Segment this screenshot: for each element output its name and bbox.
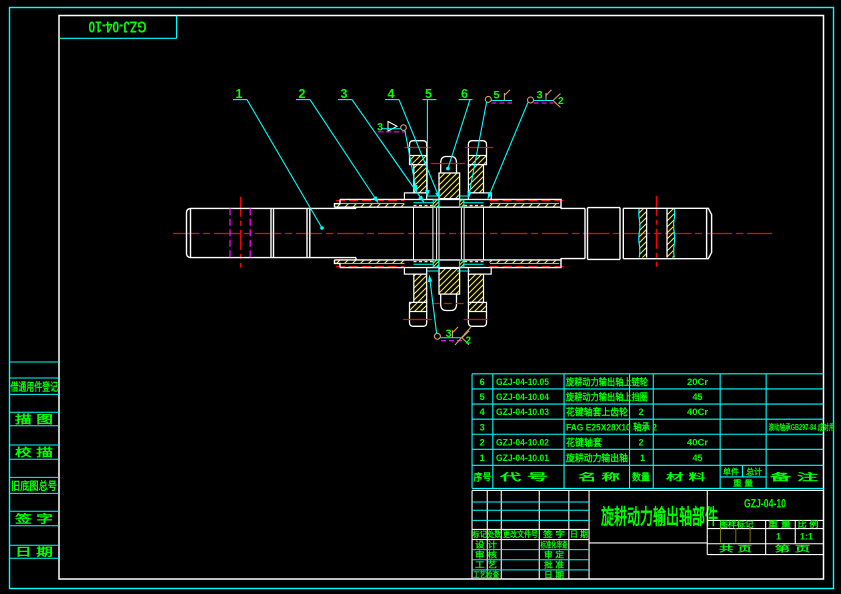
- svg-text:40Cr: 40Cr: [687, 407, 709, 417]
- svg-text:45: 45: [693, 392, 703, 402]
- svg-text:序号: 序号: [474, 472, 492, 484]
- svg-text:GZJ-04-10.02: GZJ-04-10.02: [496, 437, 549, 447]
- svg-text:名 称: 名 称: [578, 472, 621, 484]
- svg-text:花键轴套上齿轮: 花键轴套上齿轮: [566, 407, 628, 419]
- svg-text:共 页: 共 页: [719, 544, 752, 554]
- svg-text:1: 1: [236, 87, 243, 101]
- svg-text:2: 2: [466, 336, 472, 347]
- svg-text:2: 2: [558, 96, 564, 107]
- svg-text:5: 5: [425, 87, 432, 101]
- svg-text:工艺检查: 工艺检查: [473, 569, 500, 579]
- svg-text:标准化审查: 标准化审查: [540, 540, 568, 550]
- svg-text:批 准: 批 准: [544, 560, 564, 570]
- svg-text:日 期: 日 期: [15, 545, 53, 559]
- svg-text:处数: 处数: [487, 529, 502, 539]
- svg-text:1: 1: [480, 453, 486, 464]
- svg-text:2: 2: [299, 87, 306, 101]
- svg-text:重 量: 重 量: [768, 519, 791, 529]
- svg-text:1: 1: [640, 453, 645, 463]
- svg-text:旋耕动力输出轴上链轮: 旋耕动力输出轴上链轮: [565, 377, 648, 389]
- svg-text:3: 3: [341, 87, 348, 101]
- svg-text:滚动轴承GB297-84 成对用: 滚动轴承GB297-84 成对用: [769, 422, 835, 432]
- svg-text:GZJ-04-10: GZJ-04-10: [744, 497, 786, 511]
- svg-text:GZJ-04-10: GZJ-04-10: [89, 18, 147, 35]
- svg-text:GZJ-04-10.04: GZJ-04-10.04: [496, 392, 549, 402]
- svg-text:借通用件登记: 借通用件登记: [10, 380, 58, 394]
- svg-text:5: 5: [494, 90, 500, 102]
- svg-text:总计: 总计: [746, 467, 762, 477]
- svg-text:GZJ-04-10.01: GZJ-04-10.01: [496, 453, 549, 463]
- svg-text:45: 45: [693, 453, 703, 463]
- svg-text:日 期: 日 期: [570, 529, 588, 539]
- svg-text:4: 4: [480, 407, 486, 418]
- svg-text:GZJ-04-10.05: GZJ-04-10.05: [496, 377, 549, 387]
- svg-text:审 核: 审 核: [475, 550, 497, 560]
- svg-text:4: 4: [388, 87, 395, 101]
- svg-text:5: 5: [480, 392, 486, 403]
- svg-text:6: 6: [461, 87, 468, 101]
- svg-text:数量: 数量: [631, 472, 650, 484]
- svg-text:1:1: 1:1: [800, 532, 813, 542]
- svg-text:FAG E25X28X10 轴承 2: FAG E25X28X10 轴承 2: [566, 422, 657, 434]
- svg-text:设 计: 设 计: [475, 540, 497, 550]
- svg-text:签 字: 签 字: [13, 512, 53, 526]
- svg-text:签 字: 签 字: [542, 529, 565, 539]
- svg-text:花键轴套: 花键轴套: [566, 437, 602, 449]
- svg-text:旧底图总号: 旧底图总号: [11, 479, 57, 493]
- svg-text:3: 3: [537, 90, 543, 102]
- svg-text:比 例: 比 例: [798, 519, 819, 529]
- svg-text:3: 3: [480, 422, 485, 433]
- svg-text:3: 3: [446, 328, 452, 340]
- svg-text:工 艺: 工 艺: [475, 560, 497, 570]
- svg-text:校 描: 校 描: [15, 445, 53, 459]
- svg-text:材 料: 材 料: [664, 472, 707, 484]
- svg-text:描 图: 描 图: [15, 412, 53, 426]
- svg-text:旋耕动力输出轴: 旋耕动力输出轴: [565, 452, 628, 464]
- svg-text:第 页: 第 页: [775, 544, 811, 554]
- svg-text:2: 2: [639, 437, 644, 447]
- svg-text:日 期: 日 期: [544, 569, 564, 579]
- svg-text:2: 2: [480, 437, 485, 448]
- svg-text:单件: 单件: [723, 467, 739, 477]
- svg-text:GZJ-04-10.03: GZJ-04-10.03: [496, 407, 549, 417]
- svg-text:2: 2: [639, 407, 644, 417]
- svg-text:40Cr: 40Cr: [687, 437, 709, 447]
- svg-text:图样标记: 图样标记: [720, 519, 754, 529]
- svg-text:1: 1: [776, 532, 781, 542]
- svg-text:代 号: 代 号: [498, 472, 549, 484]
- svg-text:审 定: 审 定: [544, 550, 564, 560]
- svg-text:旋耕动力输出轴上挡圈: 旋耕动力输出轴上挡圈: [565, 392, 648, 404]
- svg-text:备 注: 备 注: [768, 472, 819, 484]
- svg-text:旋耕动力输出轴部件: 旋耕动力输出轴部件: [600, 505, 718, 529]
- svg-text:更改文件号: 更改文件号: [503, 529, 538, 539]
- svg-text:20Cr: 20Cr: [687, 377, 709, 387]
- svg-text:重 量: 重 量: [733, 478, 753, 488]
- svg-text:6: 6: [480, 377, 485, 388]
- svg-text:标记: 标记: [472, 529, 487, 539]
